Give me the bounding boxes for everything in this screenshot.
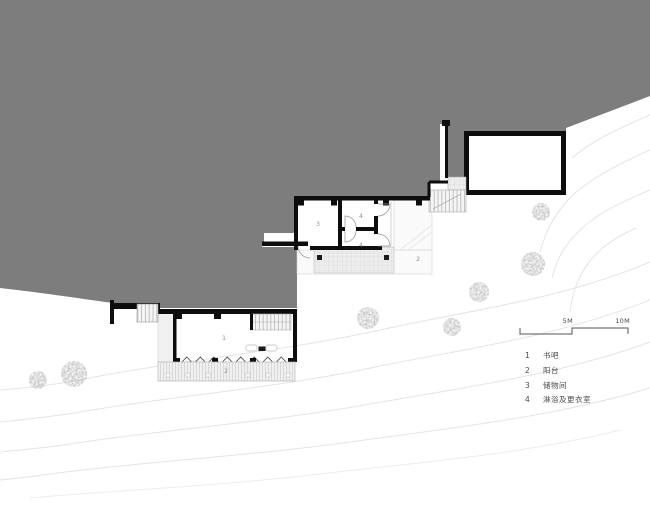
label-deck-balcony: 2 xyxy=(224,368,228,375)
furniture xyxy=(246,345,277,351)
tree-icon xyxy=(29,371,47,389)
tree-icon xyxy=(357,307,379,329)
tree-icon xyxy=(443,318,461,336)
tree-icon xyxy=(532,203,550,221)
legend-item-label: 储物间 xyxy=(543,379,567,394)
upper-patio xyxy=(297,198,432,274)
interior-stair xyxy=(250,314,291,330)
legend-item-number: 3 xyxy=(525,379,543,394)
terrain-notch xyxy=(264,233,294,242)
book-bar-room xyxy=(110,300,297,381)
legend-item-label: 淋浴及更衣室 xyxy=(543,393,591,408)
pool-volume xyxy=(467,134,564,193)
tree-icon xyxy=(61,361,87,387)
scale-label-10m: 10M xyxy=(615,317,630,325)
label-shower-upper: 4 xyxy=(359,213,363,220)
legend-item-label: 书吧 xyxy=(543,349,559,364)
label-book-bar: 1 xyxy=(222,335,226,342)
tiled-balcony xyxy=(314,247,394,273)
legend-item-number: 4 xyxy=(525,393,543,408)
legend-item: 1 书吧 xyxy=(525,349,591,364)
label-upper-balcony: 2 xyxy=(416,256,420,263)
site-plan-drawing: 1 2 2 3 4 4 5M 10M xyxy=(0,0,650,506)
scale-label-5m: 5M xyxy=(563,317,573,325)
legend-item: 2 阳台 xyxy=(525,364,591,379)
legend: 1 书吧 2 阳台 3 储物间 4 淋浴及更衣室 xyxy=(525,349,591,408)
label-storage: 3 xyxy=(316,221,320,228)
legend-item-label: 阳台 xyxy=(543,364,559,379)
label-shower-lower: 4 xyxy=(359,242,363,249)
legend-item-number: 2 xyxy=(525,364,543,379)
legend-item-number: 1 xyxy=(525,349,543,364)
exterior-stair xyxy=(137,304,158,322)
legend-item: 3 储物间 xyxy=(525,379,591,394)
tree-icon xyxy=(521,252,545,276)
legend-item: 4 淋浴及更衣室 xyxy=(525,393,591,408)
tree-icon xyxy=(469,282,489,302)
site-plan-page: 1 2 2 3 4 4 5M 10M 1 书吧 2 阳台 3 储物间 4 淋浴及… xyxy=(0,0,650,506)
